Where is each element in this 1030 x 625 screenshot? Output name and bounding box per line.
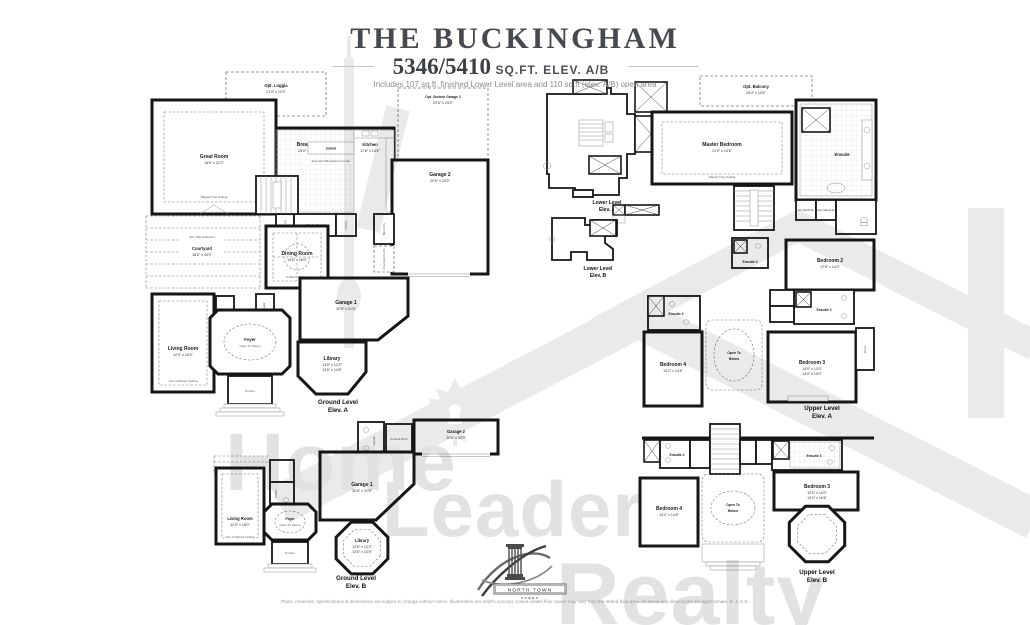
svg-text:Raised Tray Ceiling: Raised Tray Ceiling <box>709 175 736 179</box>
svg-text:20'6" x 23'0": 20'6" x 23'0" <box>430 179 450 183</box>
svg-text:Elev. A: Elev. A <box>328 407 348 414</box>
svg-text:21'0" x 14'6": 21'0" x 14'6" <box>712 149 732 153</box>
svg-text:Covered Porch: Covered Porch <box>382 248 386 269</box>
open-to-below <box>706 320 762 390</box>
svg-text:His Wardrobe: His Wardrobe <box>798 208 814 212</box>
room-label-bedroom4: Bedroom 4 <box>660 362 686 368</box>
level-label: Upper Level <box>804 405 840 412</box>
landing <box>702 544 764 562</box>
area-note: Includes 107 sq.ft. finished Lower Level… <box>0 80 1030 89</box>
linen-closet <box>770 306 794 322</box>
svg-text:Opt. Coffered Ceiling: Opt. Coffered Ceiling <box>226 535 255 539</box>
svg-text:Open To Above: Open To Above <box>239 344 260 348</box>
room-label-great-room: Great Room <box>200 154 229 160</box>
svg-text:Below: Below <box>728 509 738 513</box>
room-label-bedroom3: Bedroom 3 <box>804 484 830 490</box>
ground-level-b-plan: Laundry Covered Porch Garage 2 20'6" x 2… <box>206 416 506 596</box>
room-label-master: Master Bedroom <box>702 142 742 148</box>
svg-text:16'6" x 22'0": 16'6" x 22'0" <box>204 161 224 165</box>
svg-text:13'0" x 16'6": 13'0" x 16'6" <box>807 496 827 500</box>
footer: Plans, materials, specifications & dimen… <box>0 594 1030 612</box>
svg-text:Powder: Powder <box>274 489 278 498</box>
svg-text:13'2" x 14'8": 13'2" x 14'8" <box>659 513 679 517</box>
svg-text:Portico: Portico <box>285 551 295 555</box>
level-label: Ground Level <box>336 575 376 582</box>
svg-text:20'6" x 23'0": 20'6" x 23'0" <box>433 101 453 105</box>
room-label-sunken-garage: Opt. Sunken Garage 2 <box>425 95 461 99</box>
svg-text:17'8" x 14'2": 17'8" x 14'2" <box>820 265 840 269</box>
water-closet <box>836 200 876 234</box>
living-room <box>216 468 264 544</box>
room-label-bedroom2: Bedroom 2 <box>817 258 843 264</box>
living-room <box>152 294 214 392</box>
linen-closet <box>740 440 756 464</box>
builder-logo: NORTH TOWN HOMES <box>470 538 590 602</box>
room-label-ensuite4: Ensuite 4 <box>669 453 684 457</box>
foyer <box>210 310 290 374</box>
svg-text:Mud Rm.: Mud Rm. <box>382 223 386 236</box>
svg-text:14'0" x 13'0": 14'0" x 13'0" <box>802 367 822 371</box>
svg-text:20'6" x 23'0": 20'6" x 23'0" <box>446 436 466 440</box>
sqft-unit: SQ.FT. ELEV. A/B <box>496 63 610 77</box>
svg-text:Hers Wardrobe: Hers Wardrobe <box>817 208 835 212</box>
sqft-value: 5346/5410 <box>393 54 491 79</box>
linen-closet <box>756 440 772 464</box>
svg-text:Laundry: Laundry <box>372 436 376 446</box>
room-label-foyer: Foyer <box>244 337 256 342</box>
basement-outline <box>547 88 635 195</box>
upper-level-b-plan: Ensuite 4 Ensuite 3 Bedroom 4 13'2" x 14… <box>634 416 880 586</box>
room-label-ensuite2: Ensuite 2 <box>742 260 757 264</box>
svg-text:17'6" x 14'6": 17'6" x 14'6" <box>360 149 380 153</box>
svg-text:12'0" x 18'0": 12'0" x 18'0" <box>230 523 250 527</box>
svg-text:14'0" x 15'0": 14'0" x 15'0" <box>802 372 822 376</box>
svg-text:20'6" x 21'6": 20'6" x 21'6" <box>352 489 372 493</box>
island-label: Island <box>326 147 336 151</box>
ground-level-a-plan: Opt. Loggia 21'0" x 12'0" Great Room 16'… <box>140 64 492 420</box>
room-label-ensuite3: Ensuite 3 <box>806 454 821 458</box>
svg-text:Portico: Portico <box>245 389 255 393</box>
room-label-dining: Dining Room <box>281 251 313 257</box>
room-label-library: Library <box>355 538 370 543</box>
window-seat <box>788 396 828 401</box>
courtyard-paving <box>146 216 260 288</box>
svg-text:18'0" x 44'0": 18'0" x 44'0" <box>192 253 212 257</box>
room-label-living: Living Room <box>227 516 253 521</box>
closet <box>690 440 710 468</box>
svg-text:20'6" x 21'6": 20'6" x 21'6" <box>336 307 356 311</box>
svg-text:13'6" x 12'2": 13'6" x 12'2" <box>322 363 342 367</box>
svg-text:W.I.C.: W.I.C. <box>863 345 867 354</box>
window-well <box>573 190 593 197</box>
room-label-garage1: Garage 1 <box>335 300 357 306</box>
builder-name: NORTH TOWN <box>508 588 553 594</box>
divider-left <box>332 66 374 67</box>
room-label-kitchen: Kitchen <box>362 142 378 147</box>
room-label-bedroom4: Bedroom 4 <box>656 506 682 512</box>
room-label-garage2: Garage 2 <box>429 172 451 178</box>
svg-text:Open To: Open To <box>727 351 741 355</box>
room-label-garage1: Garage 1 <box>351 482 373 488</box>
room-label-ensuite3: Ensuite 3 <box>816 308 831 312</box>
room-label-ensuite: Ensuite <box>834 152 850 157</box>
room-label-living: Living Room <box>168 346 199 352</box>
powder-room <box>270 482 294 506</box>
closet <box>270 460 294 482</box>
svg-text:Elev. B: Elev. B <box>346 583 367 590</box>
svg-text:13'6" x 14'8": 13'6" x 14'8" <box>322 368 342 372</box>
linen-closet <box>770 290 794 306</box>
svg-text:13'6" x 12'2": 13'6" x 12'2" <box>352 545 372 549</box>
side-entrance-note: Opt. Side Entrance <box>189 235 215 239</box>
floorplan-sheet: THE BUCKINGHAM 5346/5410 SQ.FT. ELEV. A/… <box>0 0 1030 625</box>
room-label-garage2: Garage 2 <box>447 429 466 434</box>
disclaimer-text: Plans, materials, specifications & dimen… <box>281 599 749 604</box>
divider-right <box>628 66 698 67</box>
level-label: Ground Level <box>318 399 358 406</box>
svg-text:14'6" x 18'0": 14'6" x 18'0" <box>287 258 307 262</box>
upper-level-a-plan: Opt. Balcony 20'4" x 10'6" Master Bedroo… <box>636 70 892 420</box>
level-label: Upper Level <box>799 569 835 576</box>
counter-note: Extended Breakfast Counter <box>312 159 351 163</box>
svg-text:Below: Below <box>729 357 739 361</box>
svg-text:12'0" x 18'0": 12'0" x 18'0" <box>173 353 193 357</box>
svg-text:Elev. B: Elev. B <box>590 273 607 279</box>
room-label-ensuite4: Ensuite 4 <box>668 312 683 316</box>
svg-text:20'4" x 10'6": 20'4" x 10'6" <box>746 91 766 95</box>
room-label-courtyard: Courtyard <box>192 246 212 251</box>
master-bedroom <box>652 112 792 184</box>
svg-text:Elev. B: Elev. B <box>807 577 828 584</box>
room-label-library: Library <box>324 356 341 362</box>
title-block: THE BUCKINGHAM 5346/5410 SQ.FT. ELEV. A/… <box>0 24 1030 89</box>
room-label-foyer: Foyer <box>285 517 295 521</box>
svg-text:13'0" x 13'0": 13'0" x 13'0" <box>807 491 827 495</box>
svg-text:Raised Tray Ceiling: Raised Tray Ceiling <box>201 195 228 199</box>
room-label-bedroom3: Bedroom 3 <box>799 360 825 366</box>
svg-text:21'0" x 12'0": 21'0" x 12'0" <box>266 90 286 94</box>
svg-text:Covered Porch: Covered Porch <box>390 437 408 441</box>
plan-title: THE BUCKINGHAM <box>0 24 1030 54</box>
svg-text:Pantry: Pantry <box>344 220 348 229</box>
vanity <box>862 120 872 180</box>
svg-text:Opt. Coffered Ceiling: Opt. Coffered Ceiling <box>169 379 198 383</box>
level-label: Lower Level <box>584 266 614 272</box>
svg-text:Open To: Open To <box>726 503 740 507</box>
bedroom-4 <box>640 478 698 546</box>
svg-text:13'2" x 14'8": 13'2" x 14'8" <box>663 369 683 373</box>
svg-text:13'6" x 14'8": 13'6" x 14'8" <box>352 550 372 554</box>
plan-subtitle: 5346/5410 SQ.FT. ELEV. A/B <box>0 55 1030 78</box>
svg-text:Open To Above: Open To Above <box>279 523 300 527</box>
foyer <box>264 504 316 540</box>
